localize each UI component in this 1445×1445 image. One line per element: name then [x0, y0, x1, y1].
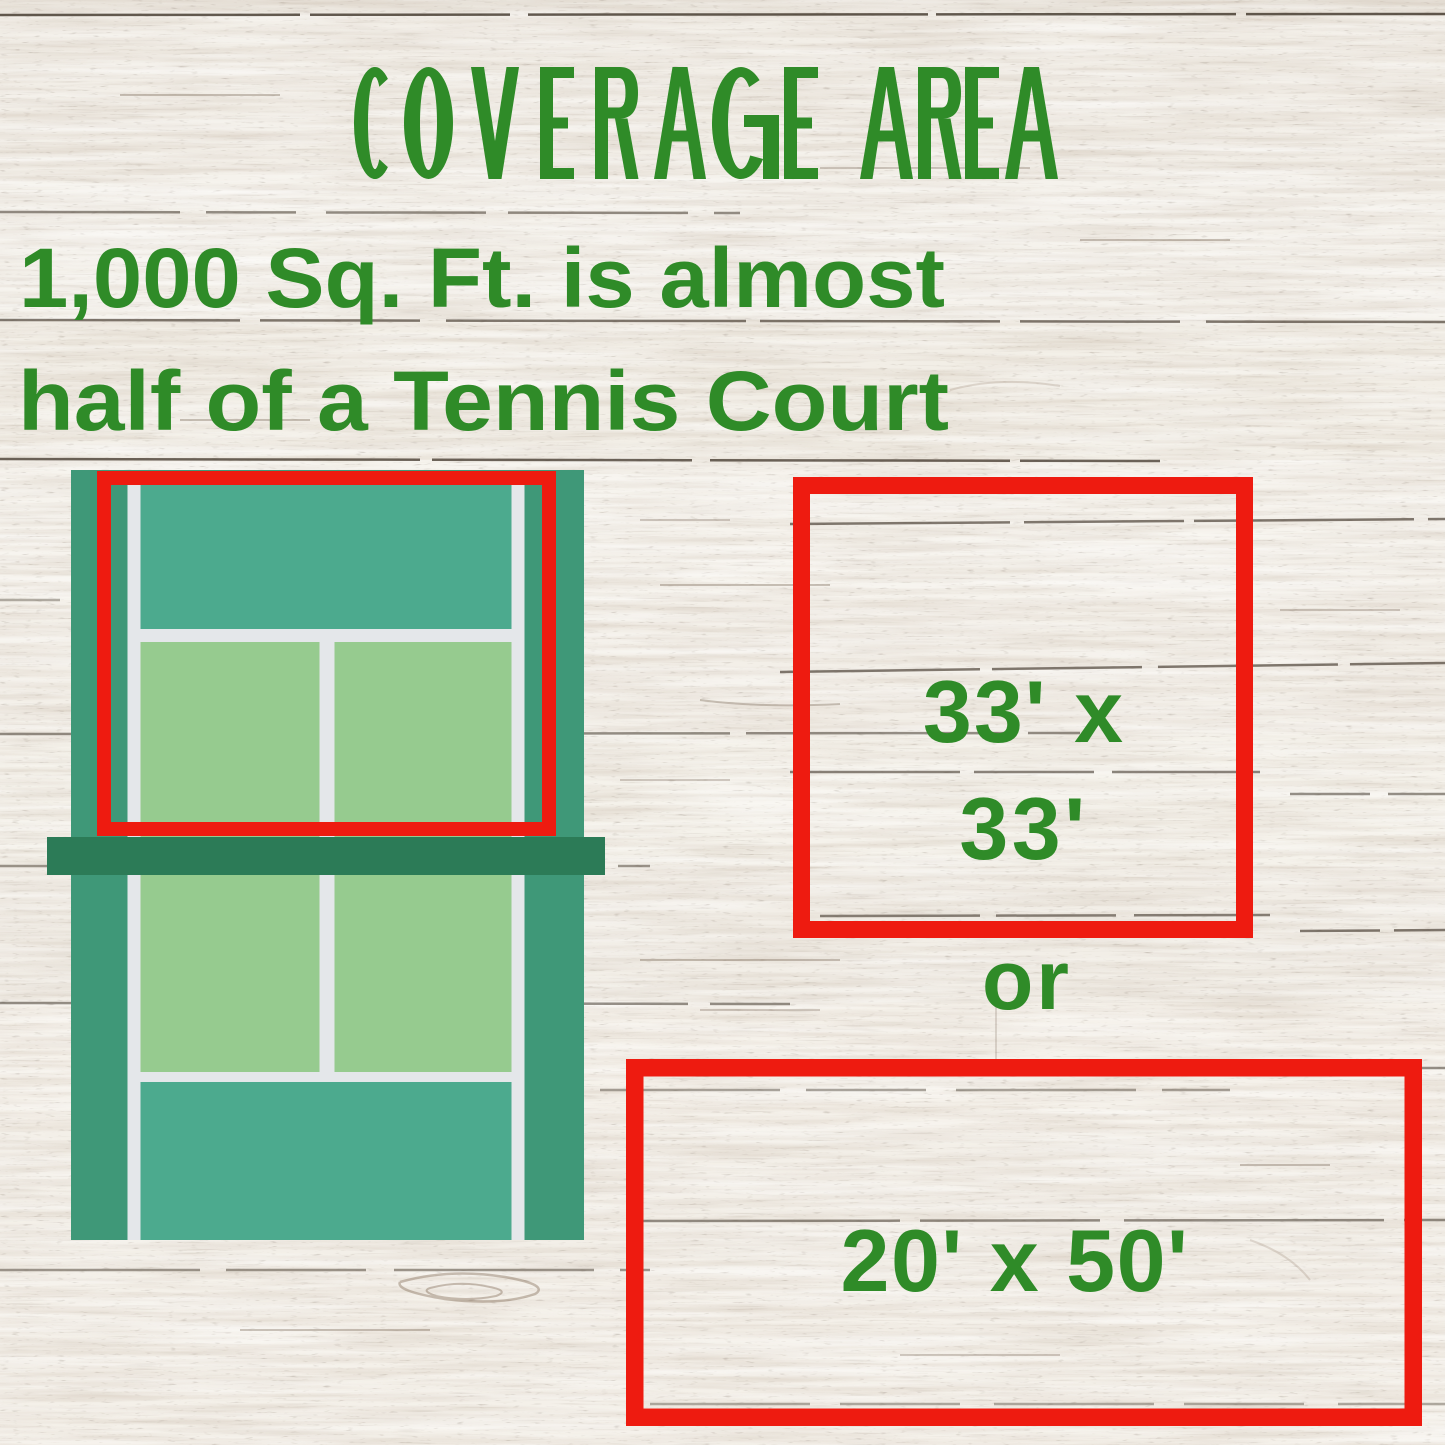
- svg-text:33' x: 33' x: [923, 662, 1125, 761]
- svg-text:20' x 50': 20' x 50': [841, 1211, 1190, 1310]
- svg-text:33': 33': [959, 779, 1088, 878]
- svg-text:half of a Tennis Court: half of a Tennis Court: [18, 354, 949, 448]
- svg-text:1,000 Sq. Ft. is almost: 1,000 Sq. Ft. is almost: [19, 231, 945, 325]
- svg-text:or: or: [982, 933, 1072, 1027]
